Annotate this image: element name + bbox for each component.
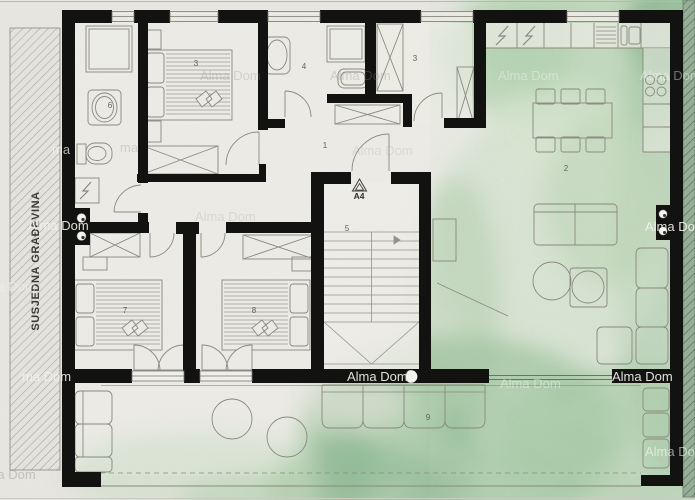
svg-text:1: 1 (323, 141, 328, 150)
svg-text:3: 3 (194, 59, 199, 68)
svg-text:9: 9 (426, 413, 431, 422)
svg-text:ma: ma (120, 140, 139, 155)
svg-text:2: 2 (564, 164, 569, 173)
svg-text:5: 5 (345, 224, 350, 233)
svg-text:6: 6 (108, 101, 113, 110)
svg-text:Alma Dom: Alma Dom (640, 68, 695, 83)
svg-text:Alma Dom: Alma Dom (200, 68, 261, 83)
svg-text:ma: ma (52, 142, 71, 157)
svg-text:Alma Dom: Alma Dom (645, 444, 695, 459)
svg-text:Alma Dom: Alma Dom (330, 68, 391, 83)
svg-text:Alma Dom: Alma Dom (0, 279, 36, 294)
svg-text:Alma Dom: Alma Dom (0, 467, 36, 482)
svg-text:SUSJEDNA GRAĐEVINA: SUSJEDNA GRAĐEVINA (30, 191, 42, 330)
svg-text:ma Dom: ma Dom (22, 369, 71, 384)
svg-text:Alma Dom: Alma Dom (195, 209, 256, 224)
svg-text:Alma Dom: Alma Dom (347, 369, 408, 384)
svg-text:Alma Dom: Alma Dom (498, 68, 559, 83)
svg-text:Alma Dom: Alma Dom (612, 369, 673, 384)
svg-text:A4: A4 (354, 191, 365, 201)
svg-text:Alma Dom: Alma Dom (28, 218, 89, 233)
svg-text:8: 8 (252, 306, 257, 315)
svg-text:7: 7 (123, 306, 128, 315)
svg-text:4: 4 (302, 62, 307, 71)
svg-text:Alma Dom: Alma Dom (645, 219, 695, 234)
svg-text:Alma Dom: Alma Dom (500, 376, 561, 391)
svg-text:Alma Dom: Alma Dom (352, 143, 413, 158)
svg-text:3: 3 (413, 54, 418, 63)
